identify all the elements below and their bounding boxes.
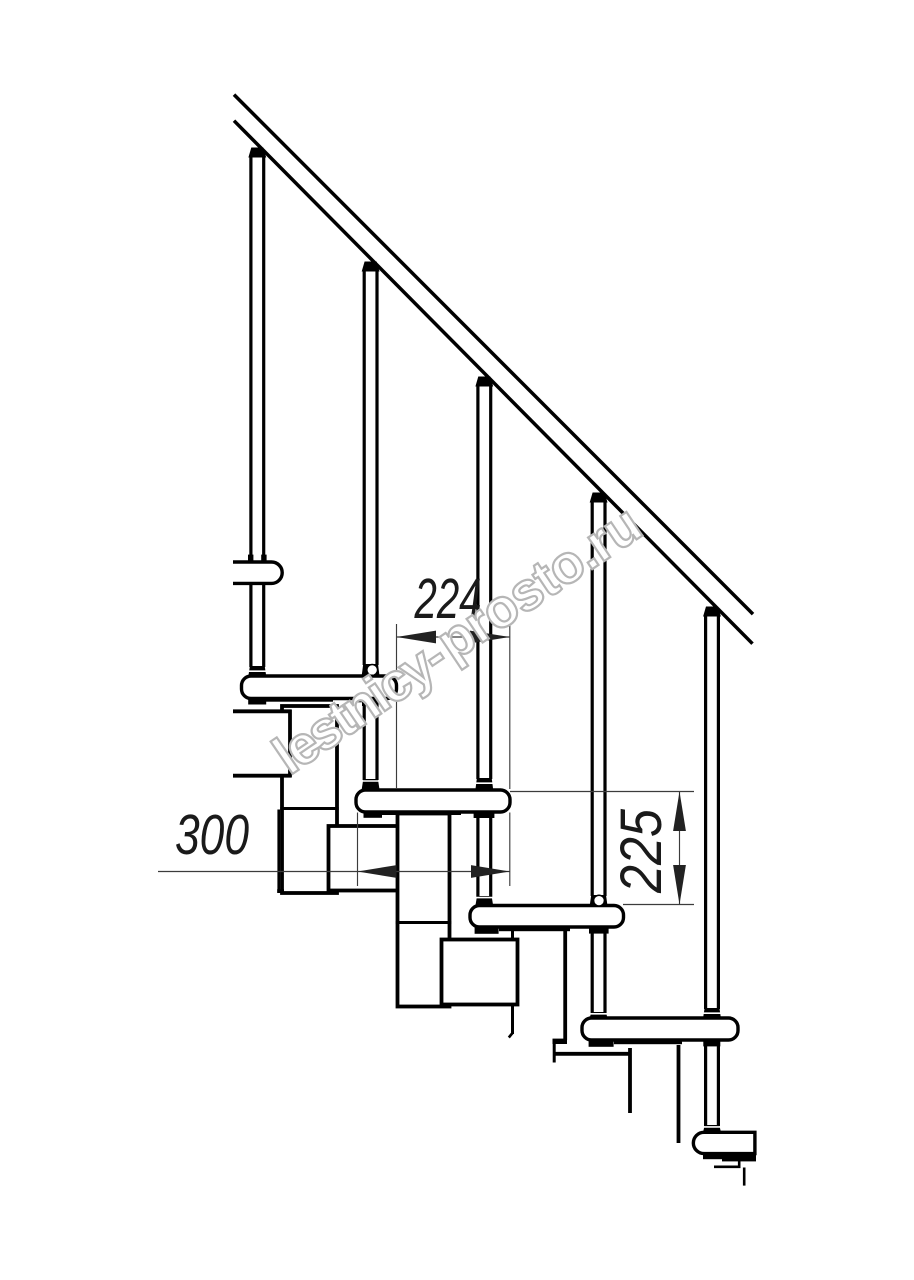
svg-text:225: 225 xyxy=(609,808,674,894)
svg-text:300: 300 xyxy=(175,803,249,867)
